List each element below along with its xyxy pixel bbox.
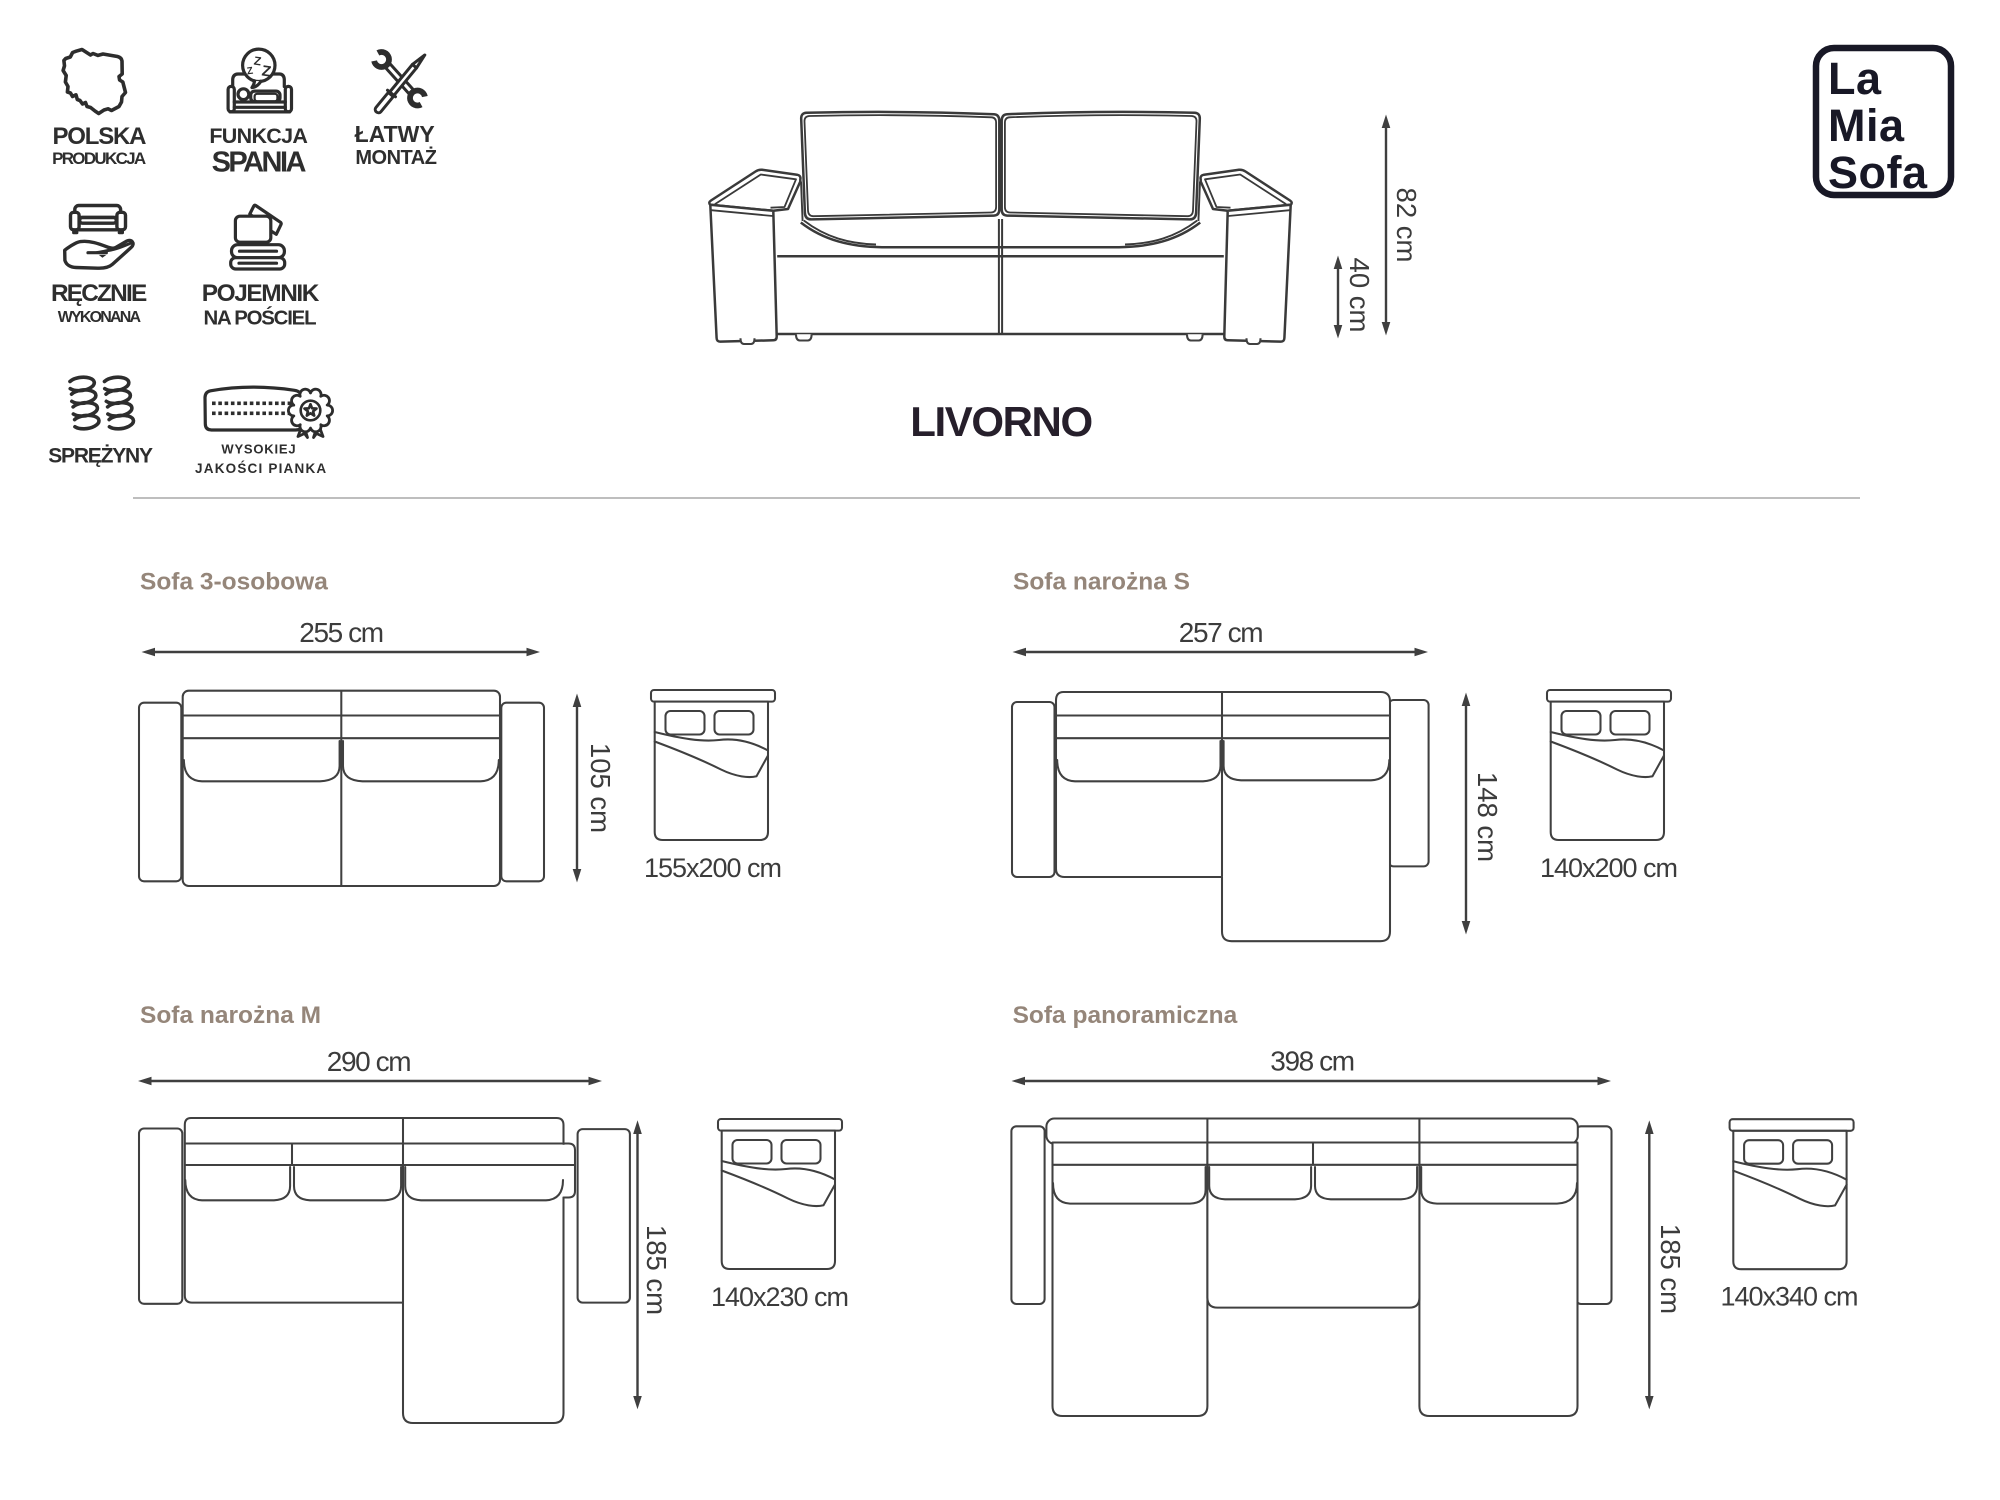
svg-text:40 cm: 40 cm bbox=[1344, 258, 1375, 333]
svg-text:Sofa: Sofa bbox=[1828, 147, 1928, 198]
svg-text:155x200 cm: 155x200 cm bbox=[644, 853, 781, 883]
svg-text:ŁATWY: ŁATWY bbox=[355, 121, 435, 147]
svg-text:398 cm: 398 cm bbox=[1270, 1046, 1353, 1077]
svg-text:290 cm: 290 cm bbox=[327, 1046, 410, 1077]
svg-text:JAKOŚCI PIANKA: JAKOŚCI PIANKA bbox=[195, 461, 327, 476]
svg-text:WYSOKIEJ: WYSOKIEJ bbox=[221, 442, 296, 457]
svg-text:NA POŚCIEL: NA POŚCIEL bbox=[203, 306, 316, 330]
svg-text:POLSKA: POLSKA bbox=[52, 123, 146, 150]
svg-text:140x200 cm: 140x200 cm bbox=[1540, 853, 1677, 883]
svg-text:Sofa panoramiczna: Sofa panoramiczna bbox=[1013, 1002, 1238, 1029]
svg-text:140x340 cm: 140x340 cm bbox=[1720, 1282, 1857, 1312]
svg-text:105 cm: 105 cm bbox=[585, 743, 616, 833]
svg-text:SPRĘŻYNY: SPRĘŻYNY bbox=[48, 445, 153, 468]
svg-text:WYKONANA: WYKONANA bbox=[58, 309, 142, 326]
svg-text:Mia: Mia bbox=[1828, 100, 1905, 151]
svg-text:148 cm: 148 cm bbox=[1472, 772, 1503, 862]
svg-text:255 cm: 255 cm bbox=[299, 617, 382, 648]
svg-text:FUNKCJA: FUNKCJA bbox=[209, 124, 307, 148]
svg-text:Sofa narożna M: Sofa narożna M bbox=[140, 1002, 321, 1029]
svg-text:Sofa narożna S: Sofa narożna S bbox=[1013, 569, 1190, 596]
svg-text:La: La bbox=[1828, 53, 1882, 104]
svg-text:257 cm: 257 cm bbox=[1179, 617, 1262, 648]
svg-text:RĘCZNIE: RĘCZNIE bbox=[51, 280, 147, 307]
svg-text:185 cm: 185 cm bbox=[1655, 1224, 1686, 1314]
svg-text:LIVORNO: LIVORNO bbox=[910, 398, 1092, 445]
svg-text:MONTAŻ: MONTAŻ bbox=[355, 146, 436, 169]
svg-text:140x230 cm: 140x230 cm bbox=[711, 1282, 848, 1312]
svg-text:SPANIA: SPANIA bbox=[212, 147, 307, 179]
svg-text:POJEMNIK: POJEMNIK bbox=[202, 280, 320, 307]
svg-text:Sofa 3-osobowa: Sofa 3-osobowa bbox=[140, 569, 328, 596]
svg-text:82 cm: 82 cm bbox=[1391, 188, 1422, 263]
svg-text:PRODUKCJA: PRODUKCJA bbox=[52, 149, 146, 168]
svg-text:185 cm: 185 cm bbox=[641, 1225, 672, 1315]
